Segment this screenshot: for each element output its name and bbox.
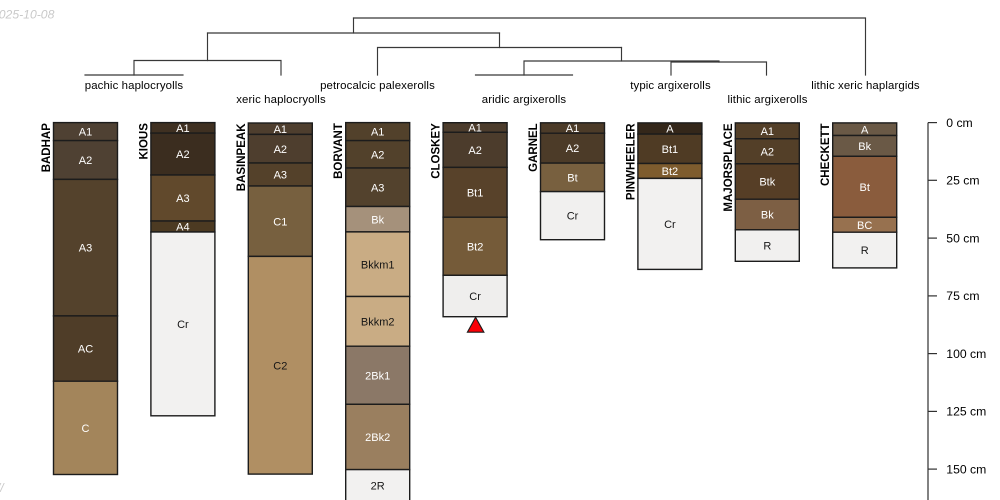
svg-text:CLOSKEY: CLOSKEY [431,123,443,179]
svg-text:C2: C2 [273,360,287,372]
svg-text:Bt: Bt [567,172,577,184]
svg-text:100 cm: 100 cm [946,347,986,361]
svg-text:BORVANT: BORVANT [333,123,345,179]
svg-text:aridic argixerolls: aridic argixerolls [482,94,567,106]
svg-text:Btk: Btk [759,177,775,189]
svg-text:2R: 2R [371,481,385,493]
svg-text:BADHAP: BADHAP [41,123,53,173]
svg-text:Bt: Bt [859,182,869,194]
svg-text:Bt1: Bt1 [467,187,484,199]
svg-text:A2: A2 [274,144,287,156]
svg-text:Cr: Cr [469,291,481,303]
svg-text:A2: A2 [79,155,92,167]
svg-text:GARNEL: GARNEL [528,123,540,172]
svg-text:A3: A3 [79,243,92,255]
svg-text:A2: A2 [566,143,579,155]
svg-text:Cr: Cr [567,211,579,223]
svg-text:150 cm: 150 cm [946,462,986,476]
svg-text:A1: A1 [79,127,92,139]
svg-text:25 cm: 25 cm [946,174,979,188]
svg-text:Bt2: Bt2 [662,166,679,178]
svg-text:BC: BC [857,220,872,232]
svg-text:Bt2: Bt2 [467,241,484,253]
svg-text:A3: A3 [274,170,287,182]
svg-text:Bk: Bk [371,214,384,226]
svg-text:0 cm: 0 cm [946,116,972,130]
svg-text:2Bk2: 2Bk2 [365,432,390,444]
svg-text:A3: A3 [371,182,384,194]
svg-text:A1: A1 [761,126,774,138]
svg-text:CHECKETT: CHECKETT [820,123,832,186]
svg-text:lithic xeric haplargids: lithic xeric haplargids [811,80,920,92]
svg-text:Bt1: Bt1 [662,144,679,156]
svg-text:2Bk1: 2Bk1 [365,370,390,382]
svg-text:lithic argixerolls: lithic argixerolls [727,94,807,106]
svg-text:pachic haplocryolls: pachic haplocryolls [85,80,184,92]
svg-text:Bkkm1: Bkkm1 [361,259,395,271]
svg-text:R: R [763,241,771,253]
svg-text:75 cm: 75 cm [946,289,979,303]
svg-text:C1: C1 [273,216,287,228]
svg-text:KIOUS: KIOUS [138,123,150,160]
svg-text:Bk: Bk [858,141,871,153]
svg-text:petrocalcic palexerolls: petrocalcic palexerolls [320,80,435,92]
svg-text:MAJORSPLACE: MAJORSPLACE [723,123,735,212]
svg-text:A2: A2 [468,145,481,157]
svg-text:125 cm: 125 cm [946,405,986,419]
svg-text:PINWHEELER: PINWHEELER [625,123,637,200]
svg-text:2025-10-08: 2025-10-08 [0,8,55,22]
svg-text:AC: AC [78,344,93,356]
svg-text:BASINPEAK: BASINPEAK [236,123,248,191]
svg-text:Bk: Bk [761,210,774,222]
svg-text:A: A [861,124,869,136]
svg-text:Cr: Cr [177,319,189,331]
svg-text:A3: A3 [176,193,189,205]
svg-text:typic argixerolls: typic argixerolls [630,80,711,92]
svg-text:A2: A2 [371,149,384,161]
svg-text:C: C [82,423,90,435]
svg-text:Cr: Cr [664,219,676,231]
svg-text:A2: A2 [176,149,189,161]
svg-text:50 cm: 50 cm [946,231,979,245]
svg-text:A2: A2 [761,146,774,158]
svg-text:R: R [861,245,869,257]
svg-text:xeric haplocryolls: xeric haplocryolls [236,94,326,106]
svg-text:Bkkm2: Bkkm2 [361,317,395,329]
svg-text:A1: A1 [371,127,384,139]
